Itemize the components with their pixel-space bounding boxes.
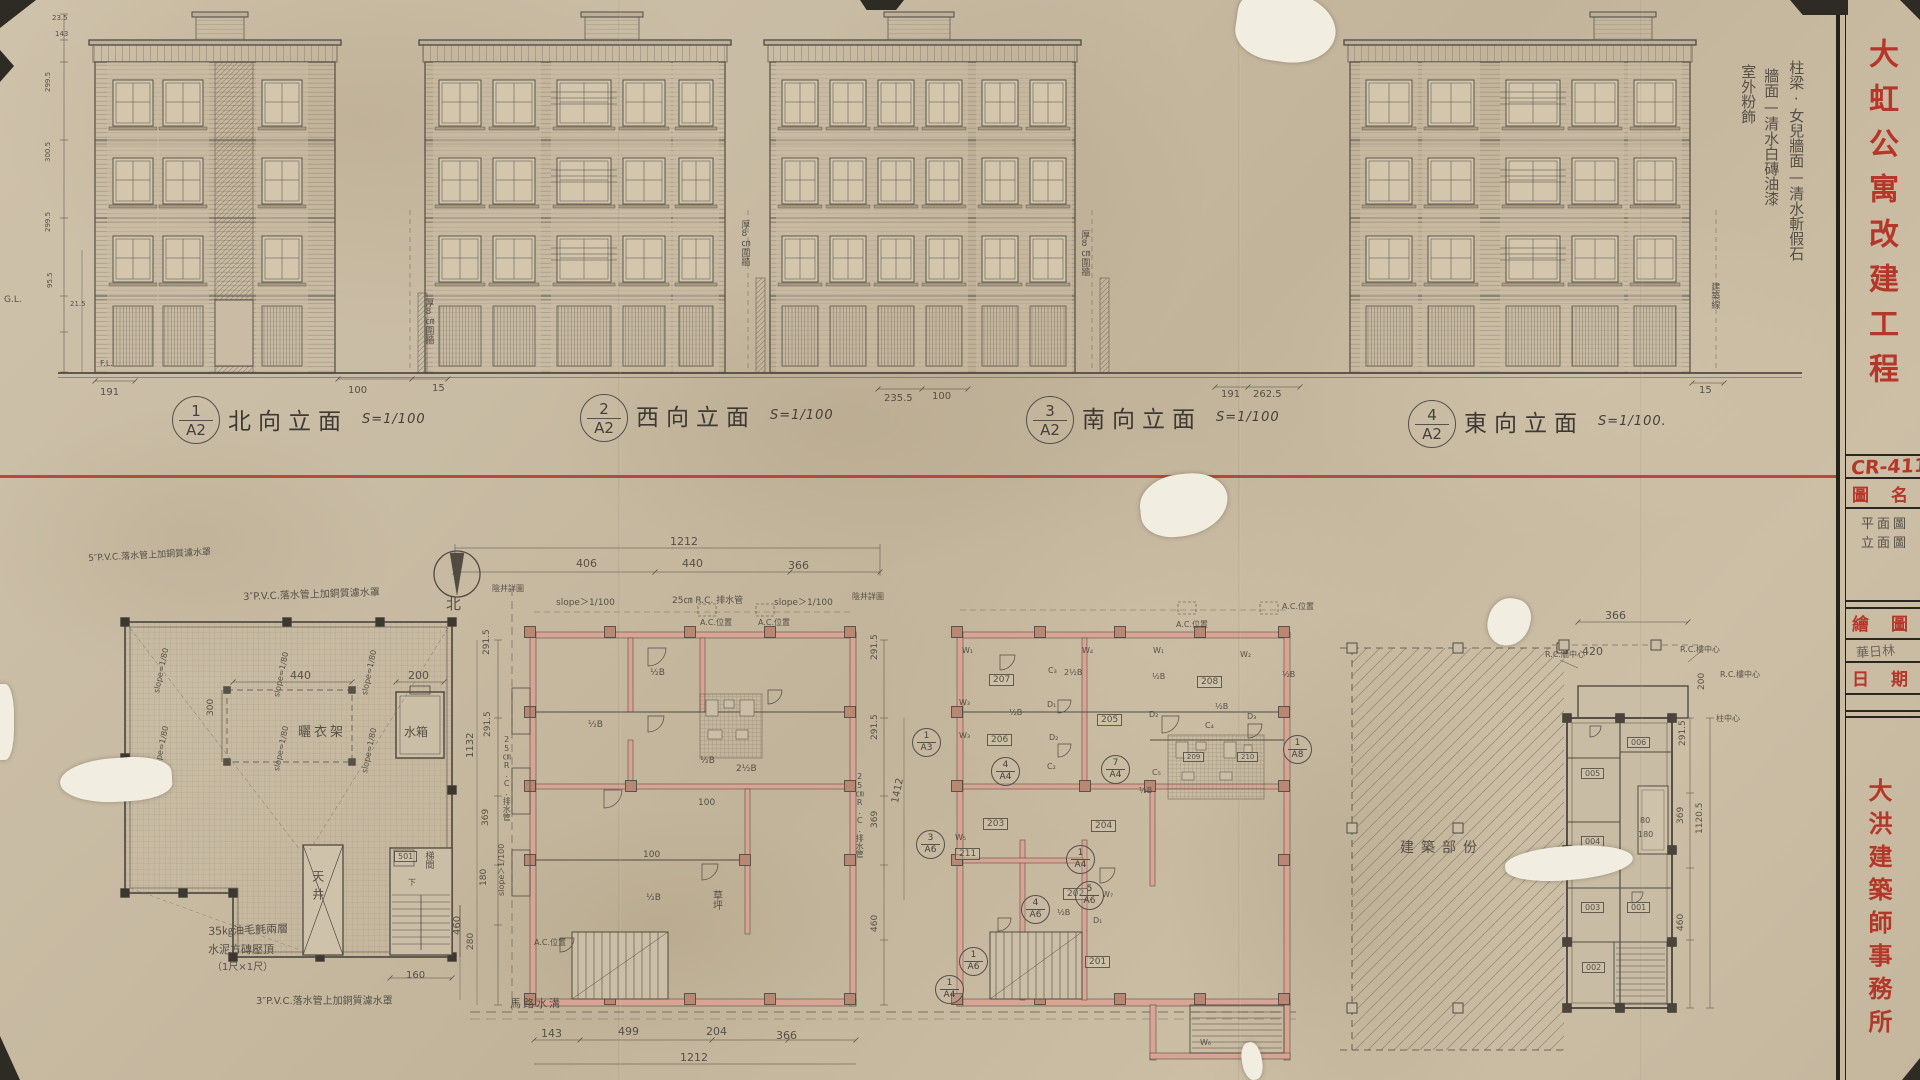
room-number: 003 <box>1581 902 1604 913</box>
annotation-label: 馬路水溝 <box>510 998 562 1011</box>
annotation-label: 291.5 <box>870 634 880 660</box>
annotation-label: A.C.位置 <box>700 618 732 627</box>
red-separator-line <box>0 475 1840 478</box>
annotation-label: 300.5 <box>44 142 52 162</box>
annotation-label: ½B <box>1057 908 1070 917</box>
drawing-number: CR-411 <box>1850 455 1920 480</box>
detail-reference-bubble: 1A3 <box>912 728 941 757</box>
ref-sheet: A6 <box>925 845 937 856</box>
ref-sheet: A4 <box>1110 770 1122 781</box>
annotation-label: W₃ <box>959 731 970 740</box>
room-number: 210 <box>1237 752 1258 762</box>
elevation-south-drawing <box>770 30 1080 380</box>
title-block-divider <box>1846 716 1920 718</box>
plan-typical-floor-drawing <box>460 530 860 1070</box>
finish-note-structure: 柱梁·女兒牆面—清水斬假石 <box>1787 60 1804 261</box>
ref-number: 3 <box>921 833 940 845</box>
annotation-label: C₃ <box>1048 666 1057 675</box>
annotation-label: D₂ <box>1149 710 1158 719</box>
annotation-label: slope＞1/100 <box>774 598 833 608</box>
annotation-label: 水箱 <box>404 726 428 740</box>
new-construction-label: 建築部份 <box>1400 840 1484 856</box>
room-number: 006 <box>1627 737 1650 748</box>
room-number: 205 <box>1097 714 1122 726</box>
annotation-label: 262.5 <box>1253 389 1282 401</box>
annotation-label: 499 <box>618 1026 639 1039</box>
annotation-label: C₄ <box>1205 721 1214 730</box>
annotation-label: 200 <box>408 670 429 683</box>
annotation-label: W₅ <box>955 833 966 842</box>
ref-sheet: A2 <box>1040 421 1060 439</box>
detail-reference-bubble: 1A4 <box>1066 845 1095 874</box>
drawing-name-line2: 立面圖 <box>1861 532 1909 551</box>
ref-number: 1 <box>1288 738 1307 750</box>
annotation-label: 陰井詳圖 <box>492 584 524 593</box>
annotation-label: ½B <box>646 893 661 903</box>
annotation-label: 200 <box>1697 673 1707 690</box>
ref-sheet: A2 <box>1422 425 1442 443</box>
annotation-label: 280 <box>466 933 476 950</box>
annotation-label: （1尺×1尺） <box>212 962 273 974</box>
annotation-label: 440 <box>682 558 703 571</box>
room-number: 207 <box>989 674 1014 686</box>
annotation-label: 80 <box>1640 816 1650 825</box>
plan-roof-drawing <box>105 585 465 1015</box>
annotation-label: ½B <box>700 756 715 766</box>
annotation-label: 191 <box>1221 389 1240 401</box>
annotation-label: A.C.位置 <box>534 938 566 947</box>
annotation-label: ½B <box>1282 670 1295 679</box>
title-block-border-inner <box>1845 0 1847 1080</box>
annotation-label: 191 <box>100 387 119 399</box>
firm-name: 大洪建築師事務所 <box>1861 778 1896 1042</box>
annotation-label: D₃ <box>1247 712 1256 721</box>
annotation-label: 143 <box>55 30 68 38</box>
room-number: 001 <box>1627 902 1650 913</box>
annotation-label: 25㎝ R.C. 排水管 <box>672 596 743 606</box>
annotation-label: 143 <box>541 1028 562 1041</box>
annotation-label: 160 <box>406 970 425 982</box>
annotation-label: G.L. <box>4 295 22 305</box>
annotation-label: ½B <box>1139 786 1152 795</box>
annotation-label: ½B <box>1152 672 1165 681</box>
annotation-label: D₁ <box>1047 700 1056 709</box>
annotation-label: A.C.位置 <box>1282 602 1314 611</box>
annotation-label: A.C.位置 <box>758 618 790 627</box>
room-number: 211 <box>955 848 980 860</box>
elevation-north-drawing <box>95 30 340 380</box>
annotation-label: 曬衣架 <box>298 726 346 741</box>
annotation-label: 420 <box>1582 646 1603 659</box>
ref-sheet: A4 <box>1075 860 1087 871</box>
ref-number: 1 <box>179 402 212 421</box>
title-block-divider <box>1846 607 1920 609</box>
annotation-label: slope＞1/100 <box>556 598 615 608</box>
detail-reference-bubble: 7A4 <box>1101 755 1130 784</box>
room-number: 002 <box>1582 962 1605 973</box>
elevation-west-drawing <box>425 30 725 380</box>
annotation-label: 100 <box>932 391 951 403</box>
annotation-label: W₄ <box>1082 646 1093 655</box>
annotation-label: 2½B <box>1064 668 1082 677</box>
detail-reference-bubble: 4A4 <box>991 757 1020 786</box>
annotation-label: 2½B <box>736 764 757 774</box>
annotation-label: W₆ <box>1200 1038 1211 1047</box>
vertical-note: 厚8㎝圍牆 <box>423 298 433 344</box>
annotation-label: 291.5 <box>870 714 880 740</box>
annotation-label: 1132 <box>465 733 477 758</box>
paper-tear <box>0 684 14 760</box>
date-label: 日期 <box>1852 665 1920 690</box>
annotation-label: 21.5 <box>70 300 86 308</box>
annotation-label: 柱中心 <box>1716 714 1740 723</box>
annotation-label: 406 <box>576 558 597 571</box>
annotation-label: 291.5 <box>482 629 492 655</box>
room-number: 209 <box>1183 752 1204 762</box>
vertical-note: 天井 <box>310 870 324 906</box>
annotation-label: W₂ <box>1240 650 1251 659</box>
ref-sheet: A8 <box>1292 750 1304 761</box>
elevation-ref-3: 3A2 <box>1026 396 1074 444</box>
annotation-label: ½B <box>588 720 603 730</box>
ref-number: 1 <box>940 978 959 990</box>
ref-number: 4 <box>996 760 1015 772</box>
room-number: 203 <box>983 818 1008 830</box>
room-number: 005 <box>1581 768 1604 779</box>
annotation-label: slope＞1/100 <box>497 844 506 896</box>
detail-reference-bubble: 4A6 <box>1021 895 1050 924</box>
room-number: 206 <box>987 734 1012 746</box>
ref-sheet: A6 <box>1030 910 1042 921</box>
annotation-label: 100 <box>698 798 715 808</box>
annotation-label: R.C.牆中心 <box>1545 650 1585 659</box>
detail-reference-bubble: 1A4 <box>935 975 964 1004</box>
title-block-divider <box>1846 710 1920 712</box>
vertical-note: 草坪 <box>710 890 722 910</box>
annotation-label: 100 <box>348 385 367 397</box>
annotation-label: F.L. <box>100 359 113 368</box>
annotation-label: W₁ <box>962 646 973 655</box>
annotation-label: ½B <box>1215 702 1228 711</box>
ref-sheet: A4 <box>944 990 956 1001</box>
annotation-label: 366 <box>788 560 809 573</box>
annotation-label: ½B <box>650 668 665 678</box>
annotation-label: 15 <box>1699 385 1712 397</box>
drawing-name-line1: 平面圖 <box>1861 513 1909 532</box>
project-title: 大虹公寓改建工程 <box>1858 38 1902 398</box>
room-number: 208 <box>1197 676 1222 688</box>
detail-reference-bubble: 3A6 <box>916 830 945 859</box>
room-number: 204 <box>1091 820 1116 832</box>
annotation-label: 3″P.V.C.落水管上加銅質濾水罩 <box>256 996 393 1008</box>
annotation-label: 水泥方磚壓頂 <box>208 944 274 957</box>
annotation-label: 460 <box>452 916 464 935</box>
elevation-scale-1: S=1/100 <box>362 412 426 427</box>
annotation-label: 95.5 <box>46 272 54 288</box>
elevation-title-1: 北向立面 <box>228 402 348 436</box>
ref-number: 5 <box>1080 884 1099 896</box>
drafter-label: 繪圖 <box>1852 610 1920 635</box>
annotation-label: R.C.樓中心 <box>1720 670 1760 679</box>
ref-number: 7 <box>1106 758 1125 770</box>
ref-number: 4 <box>1415 406 1448 425</box>
elevation-scale-4: S=1/100. <box>1598 414 1667 429</box>
vertical-note: 建築線 <box>1709 282 1719 309</box>
annotation-label: C₂ <box>1047 762 1056 771</box>
ref-sheet: A3 <box>921 743 933 754</box>
annotation-label: 460 <box>870 915 880 932</box>
annotation-label: D₂ <box>1049 733 1058 742</box>
detail-reference-bubble: 1A8 <box>1283 735 1312 764</box>
annotation-label: 460 <box>1676 914 1686 931</box>
annotation-label: W₃ <box>959 698 970 707</box>
elevation-scale-3: S=1/100 <box>1216 410 1280 425</box>
annotation-label: 下 <box>408 878 416 887</box>
vertical-note: 梯間 <box>423 851 433 869</box>
blueprint-sheet: 柱梁·女兒牆面—清水斬假石牆面—清水白磚油漆室外粉飾G.L.F.L.23.514… <box>0 0 1920 1080</box>
annotation-label: 299.5 <box>44 212 52 232</box>
drawing-name-label: 圖名 <box>1852 481 1920 506</box>
ref-number: 2 <box>587 400 620 419</box>
title-block-divider <box>1846 600 1920 602</box>
ref-sheet: A4 <box>1000 772 1012 783</box>
annotation-label: ½B <box>1009 708 1022 717</box>
north-label: 北 <box>446 596 461 613</box>
annotation-label: D₁ <box>1093 916 1102 925</box>
vertical-note: 25㎝R.C.排水管 <box>855 772 864 858</box>
vertical-note: 厚8㎝圍牆 <box>739 220 749 266</box>
annotation-label: 陰井詳圖 <box>852 592 884 601</box>
annotation-label: 440 <box>290 670 311 683</box>
annotation-label: 300 <box>206 699 216 716</box>
elevation-title-3: 南向立面 <box>1082 400 1202 434</box>
elevation-title-2: 西向立面 <box>636 398 756 432</box>
room-number: 201 <box>1085 956 1110 968</box>
annotation-label: 1212 <box>680 1052 708 1065</box>
ref-sheet: A6 <box>1084 896 1096 907</box>
annotation-label: 366 <box>776 1030 797 1043</box>
annotation-label: 369 <box>481 809 491 826</box>
annotation-label: 180 <box>479 869 489 886</box>
elevation-ref-1: 1A2 <box>172 396 220 444</box>
detail-reference-bubble: 5A6 <box>1075 881 1104 910</box>
annotation-label: 366 <box>1605 610 1626 623</box>
elevation-ref-4: 4A2 <box>1408 400 1456 448</box>
elevation-east-drawing <box>1350 8 1695 378</box>
ref-number: 1 <box>1071 848 1090 860</box>
annotation-label: W₁ <box>1153 646 1164 655</box>
annotation-label: 291.5 <box>483 711 493 737</box>
annotation-label: 299.5 <box>44 72 52 92</box>
ref-sheet: A2 <box>186 421 206 439</box>
finish-note-exterior: 室外粉飾 <box>1739 64 1756 124</box>
ref-number: 1 <box>917 731 936 743</box>
vertical-note: 厚8㎝圍牆 <box>1079 230 1089 276</box>
title-block-divider <box>1846 507 1920 509</box>
annotation-label: 180 <box>1638 830 1653 839</box>
annotation-label: 1120.5 <box>1695 803 1705 835</box>
ref-sheet: A2 <box>594 419 614 437</box>
elevation-title-4: 東向立面 <box>1464 404 1584 438</box>
annotation-label: 15 <box>432 383 445 395</box>
ref-number: 1 <box>964 950 983 962</box>
ref-number: 3 <box>1033 402 1066 421</box>
annotation-label: 100 <box>643 850 660 860</box>
drafter-name: 華日林 <box>1855 640 1895 662</box>
annotation-label: 235.5 <box>884 393 913 405</box>
annotation-label: 23.5 <box>52 14 68 22</box>
room-number: 501 <box>394 851 417 862</box>
annotation-label: A.C.位置 <box>1176 620 1208 629</box>
annotation-label: 369 <box>870 811 880 828</box>
detail-reference-bubble: 1A6 <box>959 947 988 976</box>
annotation-label: C₅ <box>1152 768 1161 777</box>
title-block-border-outer <box>1836 0 1840 1080</box>
annotation-label: 369 <box>1676 807 1686 824</box>
finish-note-wall: 牆面—清水白磚油漆 <box>1762 68 1779 206</box>
title-block-divider <box>1846 693 1920 695</box>
annotation-label: 204 <box>706 1026 727 1039</box>
vertical-note: 25㎝R.C.排水管 <box>502 735 511 821</box>
ref-sheet: A6 <box>968 962 980 973</box>
elevation-ref-2: 2A2 <box>580 394 628 442</box>
annotation-label: 1212 <box>670 536 698 549</box>
ref-number: 4 <box>1026 898 1045 910</box>
elevation-scale-2: S=1/100 <box>770 408 834 423</box>
annotation-label: 291.5 <box>1678 720 1688 746</box>
annotation-label: R.C.樓中心 <box>1680 645 1720 654</box>
